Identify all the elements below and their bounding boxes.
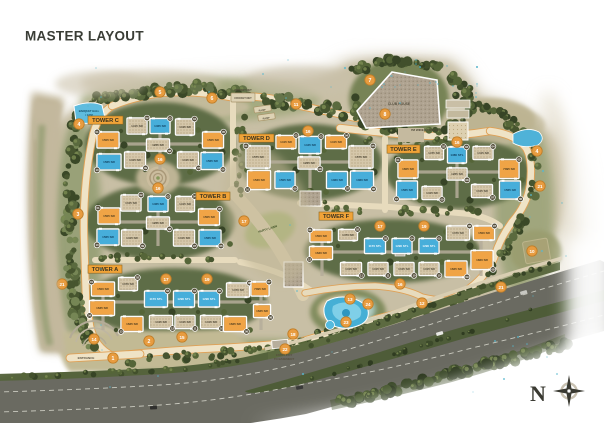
svg-text:1415 SR: 1415 SR <box>423 267 436 271</box>
svg-text:1635 SR: 1635 SR <box>96 306 109 310</box>
svg-text:1565 SR: 1565 SR <box>103 160 116 164</box>
svg-text:3: 3 <box>77 212 80 218</box>
svg-text:1565 SR: 1565 SR <box>504 188 517 192</box>
svg-text:TOWER D: TOWER D <box>243 136 270 142</box>
svg-text:1820 SR: 1820 SR <box>476 258 489 262</box>
svg-text:1415 SR: 1415 SR <box>330 140 343 144</box>
svg-text:03: 03 <box>166 289 170 293</box>
svg-text:1575 SR: 1575 SR <box>355 155 368 159</box>
svg-text:06: 06 <box>221 168 225 172</box>
svg-text:08: 08 <box>168 227 172 231</box>
svg-text:1565 SR: 1565 SR <box>401 188 414 192</box>
svg-text:14: 14 <box>91 337 97 342</box>
svg-text:03: 03 <box>465 145 469 149</box>
svg-text:02: 02 <box>356 228 360 232</box>
svg-text:1415 SR: 1415 SR <box>182 158 195 162</box>
svg-text:7M WIDE DRIVE WAY: 7M WIDE DRIVE WAY <box>411 128 441 132</box>
svg-text:07: 07 <box>197 166 201 170</box>
svg-text:02: 02 <box>136 276 140 280</box>
svg-text:1: 1 <box>112 356 115 362</box>
svg-text:1470 SR: 1470 SR <box>342 233 355 237</box>
svg-text:03: 03 <box>319 135 323 139</box>
svg-text:1500 SR: 1500 SR <box>97 287 110 291</box>
svg-text:1415 SR: 1415 SR <box>179 320 192 324</box>
svg-text:7095 SR: 7095 SR <box>254 287 267 291</box>
svg-text:01: 01 <box>308 228 312 232</box>
svg-text:10: 10 <box>395 197 399 201</box>
svg-text:1470 SR: 1470 SR <box>122 282 135 286</box>
svg-text:1465 SR: 1465 SR <box>154 124 167 128</box>
svg-text:1415 SR: 1415 SR <box>179 125 192 129</box>
svg-text:1475 SR: 1475 SR <box>428 151 441 155</box>
svg-text:01: 01 <box>96 206 100 210</box>
svg-text:1625 SR: 1625 SR <box>229 322 242 326</box>
svg-text:CRICKET NET: CRICKET NET <box>234 88 252 92</box>
svg-text:1360 SR: 1360 SR <box>331 178 344 182</box>
svg-text:TOWER C: TOWER C <box>92 118 119 124</box>
svg-text:02: 02 <box>139 193 143 197</box>
svg-text:16: 16 <box>157 157 163 162</box>
svg-text:09: 09 <box>245 330 249 334</box>
svg-text:03: 03 <box>166 195 170 199</box>
svg-text:1265 SR: 1265 SR <box>152 221 165 225</box>
svg-text:1265 SR: 1265 SR <box>303 161 316 165</box>
svg-text:CRICKET NET: CRICKET NET <box>234 96 252 100</box>
svg-text:1415 SR: 1415 SR <box>398 267 411 271</box>
svg-text:09: 09 <box>144 166 148 170</box>
svg-text:6: 6 <box>211 96 214 102</box>
svg-text:15: 15 <box>179 335 185 340</box>
svg-text:1415 SR: 1415 SR <box>345 267 358 271</box>
svg-text:09: 09 <box>440 198 444 202</box>
svg-text:16: 16 <box>155 186 161 191</box>
svg-text:08: 08 <box>168 149 172 153</box>
svg-text:1530 SR: 1530 SR <box>253 178 266 182</box>
svg-text:04: 04 <box>491 145 495 149</box>
svg-text:2: 2 <box>148 339 151 345</box>
svg-text:17: 17 <box>163 277 169 282</box>
svg-text:10: 10 <box>437 274 441 278</box>
svg-text:10: 10 <box>412 274 416 278</box>
svg-text:1565 SR: 1565 SR <box>206 159 219 163</box>
svg-text:1170 STL: 1170 STL <box>368 244 381 248</box>
svg-text:08: 08 <box>269 316 273 320</box>
svg-text:1290 STL: 1290 STL <box>177 297 190 301</box>
svg-text:7095 SR: 7095 SR <box>503 167 516 171</box>
svg-text:11: 11 <box>194 327 197 331</box>
svg-text:ENTRANCE: ENTRANCE <box>78 356 95 360</box>
svg-text:1415 SR: 1415 SR <box>280 140 293 144</box>
svg-text:1625 SR: 1625 SR <box>126 322 139 326</box>
svg-text:1415 SR: 1415 SR <box>372 267 385 271</box>
svg-text:19: 19 <box>421 224 427 229</box>
svg-text:1500 SR: 1500 SR <box>478 231 491 235</box>
svg-text:1630 SR: 1630 SR <box>315 251 328 255</box>
svg-text:11: 11 <box>387 274 390 278</box>
svg-text:05: 05 <box>222 130 226 134</box>
svg-text:10: 10 <box>95 168 99 172</box>
svg-text:05: 05 <box>218 207 222 211</box>
svg-text:13: 13 <box>347 297 353 302</box>
svg-text:03: 03 <box>168 117 172 121</box>
svg-text:08: 08 <box>465 178 469 182</box>
svg-text:1415 SR: 1415 SR <box>179 202 192 206</box>
svg-text:1470 SR: 1470 SR <box>452 231 465 235</box>
svg-text:1290 STL: 1290 STL <box>395 244 408 248</box>
svg-text:05: 05 <box>437 237 441 241</box>
svg-text:08: 08 <box>491 268 495 272</box>
svg-text:1415 SR: 1415 SR <box>477 151 490 155</box>
svg-text:06: 06 <box>219 244 223 248</box>
svg-text:19: 19 <box>204 277 210 282</box>
svg-text:TOWER E: TOWER E <box>390 147 417 153</box>
svg-text:1445 SR: 1445 SR <box>304 143 317 147</box>
svg-text:1505 SR: 1505 SR <box>102 138 115 142</box>
svg-text:1415 SR: 1415 SR <box>205 320 218 324</box>
svg-text:1625 SR: 1625 SR <box>256 309 269 313</box>
svg-text:21: 21 <box>498 285 504 290</box>
svg-text:1415 SR: 1415 SR <box>155 320 168 324</box>
svg-text:1470 SR: 1470 SR <box>232 288 245 292</box>
svg-text:5: 5 <box>159 90 162 96</box>
svg-text:1625 SR: 1625 SR <box>450 267 463 271</box>
svg-text:1265 SR: 1265 SR <box>451 172 464 176</box>
svg-text:MASTER LAYOUT: MASTER LAYOUT <box>25 29 144 44</box>
svg-text:10: 10 <box>529 249 535 254</box>
svg-text:02: 02 <box>294 134 298 138</box>
svg-text:1415 SR: 1415 SR <box>126 236 139 240</box>
svg-text:4: 4 <box>78 122 81 128</box>
svg-text:1505 SR: 1505 SR <box>279 178 292 182</box>
svg-text:TOWER F: TOWER F <box>323 214 350 220</box>
svg-text:06: 06 <box>468 224 472 228</box>
svg-text:10: 10 <box>246 188 250 192</box>
svg-text:02: 02 <box>442 145 446 149</box>
svg-text:16: 16 <box>305 129 311 134</box>
svg-text:1605 SR: 1605 SR <box>402 167 415 171</box>
svg-text:06: 06 <box>519 197 523 201</box>
svg-text:12: 12 <box>171 327 175 331</box>
svg-text:06: 06 <box>372 187 376 191</box>
svg-text:07: 07 <box>493 224 497 228</box>
svg-text:07: 07 <box>267 280 271 284</box>
svg-text:1505 SR: 1505 SR <box>103 214 116 218</box>
svg-text:12: 12 <box>419 301 425 306</box>
svg-text:1465 SR: 1465 SR <box>152 202 165 206</box>
svg-text:11: 11 <box>360 274 363 278</box>
svg-text:16: 16 <box>454 140 460 145</box>
svg-text:17: 17 <box>241 219 247 224</box>
svg-text:1415 SR: 1415 SR <box>426 191 439 195</box>
svg-text:24: 24 <box>365 302 371 307</box>
svg-text:1380 STL: 1380 STL <box>450 153 463 157</box>
svg-text:07: 07 <box>193 244 197 248</box>
svg-text:1500 SR: 1500 SR <box>315 234 328 238</box>
svg-text:1265 SR: 1265 SR <box>152 143 165 147</box>
svg-text:18: 18 <box>290 332 296 337</box>
svg-text:1415 SR: 1415 SR <box>178 236 191 240</box>
svg-text:1415 SR: 1415 SR <box>131 124 144 128</box>
svg-text:1360 SR: 1360 SR <box>356 178 369 182</box>
svg-text:4: 4 <box>536 149 539 155</box>
svg-text:1290 STL: 1290 STL <box>202 297 215 301</box>
svg-text:1290 STL: 1290 STL <box>422 244 435 248</box>
svg-text:1505 SR: 1505 SR <box>203 215 216 219</box>
svg-text:1575 SR: 1575 SR <box>252 155 265 159</box>
svg-text:07: 07 <box>346 187 350 191</box>
svg-text:04: 04 <box>88 314 92 318</box>
svg-text:BANQUET HALL: BANQUET HALL <box>79 109 100 113</box>
svg-text:11: 11 <box>294 102 299 107</box>
svg-text:10: 10 <box>95 243 99 247</box>
svg-text:03: 03 <box>384 237 388 241</box>
svg-text:1565 SR: 1565 SR <box>204 236 217 240</box>
svg-text:21: 21 <box>59 282 65 287</box>
svg-text:12: 12 <box>308 258 312 262</box>
svg-text:01: 01 <box>396 158 400 162</box>
svg-text:04: 04 <box>410 237 414 241</box>
svg-text:21: 21 <box>537 184 543 189</box>
svg-text:17: 17 <box>377 224 383 229</box>
svg-text:09: 09 <box>293 187 297 191</box>
svg-text:07: 07 <box>491 196 495 200</box>
svg-text:05: 05 <box>371 144 375 148</box>
svg-text:04: 04 <box>193 289 197 293</box>
svg-text:01: 01 <box>244 144 248 148</box>
svg-text:09: 09 <box>141 244 145 248</box>
svg-text:TOWER B: TOWER B <box>200 194 227 200</box>
svg-text:1415 SR: 1415 SR <box>476 189 489 193</box>
svg-text:08: 08 <box>318 167 322 171</box>
svg-text:16: 16 <box>397 282 403 287</box>
svg-text:N: N <box>530 381 546 406</box>
svg-text:1505 SR: 1505 SR <box>207 138 220 142</box>
svg-text:TO BASEMENT: TO BASEMENT <box>274 357 295 361</box>
svg-text:01: 01 <box>90 280 94 284</box>
svg-text:04: 04 <box>345 134 349 138</box>
svg-text:09: 09 <box>465 275 469 279</box>
svg-text:1415 SR: 1415 SR <box>129 158 142 162</box>
svg-text:02: 02 <box>145 116 149 120</box>
svg-text:04: 04 <box>193 117 197 121</box>
svg-text:05: 05 <box>218 289 222 293</box>
svg-text:8: 8 <box>384 112 387 118</box>
svg-text:22: 22 <box>282 347 288 352</box>
svg-text:1565 SR: 1565 SR <box>102 235 115 239</box>
svg-text:7: 7 <box>369 78 372 84</box>
svg-text:23: 23 <box>343 320 349 325</box>
svg-text:1170 STL: 1170 STL <box>149 297 162 301</box>
svg-text:13: 13 <box>119 330 123 334</box>
svg-text:TOWER A: TOWER A <box>92 267 119 273</box>
svg-text:05: 05 <box>517 158 521 162</box>
svg-text:1415 SR: 1415 SR <box>125 201 138 205</box>
svg-text:01: 01 <box>95 130 99 134</box>
